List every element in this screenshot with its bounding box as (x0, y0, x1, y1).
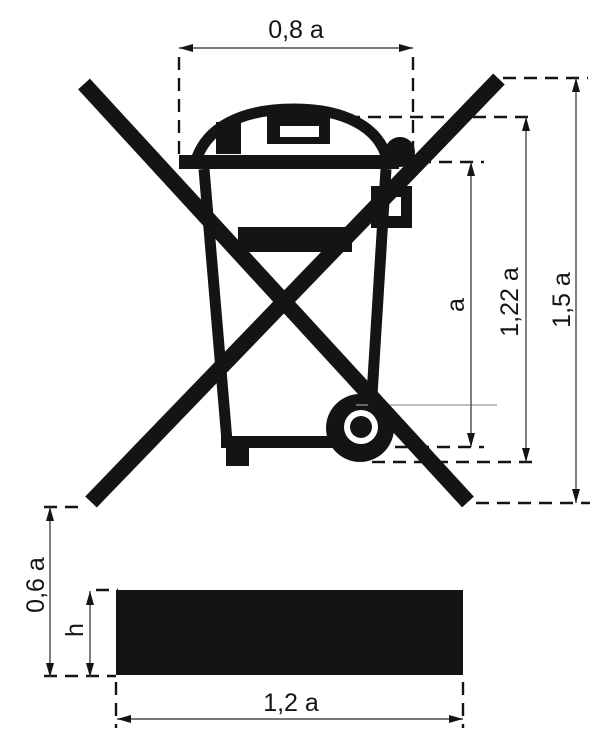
dim-bar-width: 1,2 a (116, 682, 463, 728)
arrowhead-up-icon (522, 117, 530, 131)
dim-bar-thickness: h (61, 590, 118, 677)
dim-overall-height: 1,5 a (476, 78, 590, 503)
dim-bar-thickness-label: h (61, 623, 89, 637)
arrowhead-left-icon (179, 44, 193, 52)
wheel-hub (350, 416, 372, 438)
dim-lid-top-height-label: 1,22 a (496, 267, 524, 337)
dim-bar-width-label: 1,2 a (263, 689, 319, 717)
black-bar (116, 590, 463, 675)
arrowhead-up-icon (46, 507, 54, 521)
bin-left-foot (226, 444, 249, 466)
dim-bin-height-label: a (442, 298, 470, 312)
dim-bar-gap-label: 0,6 a (22, 557, 50, 613)
arrowhead-right-icon (449, 715, 463, 723)
arrowhead-left-icon (117, 715, 131, 723)
arrowhead-right-icon (399, 44, 413, 52)
dim-bar-gap: 0,6 a (22, 507, 116, 677)
arrowhead-down-icon (572, 489, 580, 503)
arrowhead-down-icon (467, 433, 475, 447)
arrowhead-down-icon (522, 448, 530, 462)
arrowhead-up-icon (86, 591, 94, 605)
arrowhead-up-icon (572, 78, 580, 92)
bin-lid-handle-slot (280, 126, 319, 137)
diagram-page: 0,8 a a 1,22 a 1,5 a (0, 0, 614, 748)
dim-lid-width-label: 0,8 a (268, 16, 324, 44)
arrowhead-up-icon (467, 162, 475, 176)
dim-overall-height-label: 1,5 a (548, 272, 576, 328)
weee-symbol-dimension-drawing: 0,8 a a 1,22 a 1,5 a (0, 0, 614, 748)
bin-lid-clasp (216, 122, 241, 154)
bin-lid-rim (179, 155, 399, 169)
crossed-out-bin-symbol (84, 79, 499, 675)
